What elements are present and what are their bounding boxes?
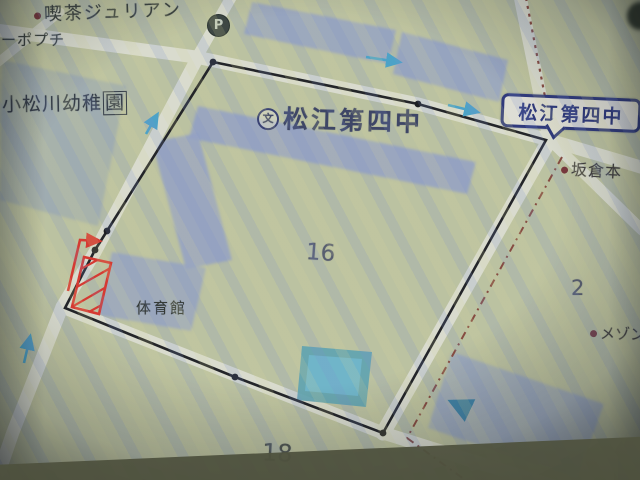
sign-matsue-dai4-chu: 松江第四中: [500, 93, 640, 133]
map-photo-stage: 喫茶ジュリアン ーポプチ 小松川幼稚園 文松江第四中 体育館 坂倉本 メゾン 1…: [0, 0, 640, 480]
label-kindergarten-text: 小松川幼稚: [2, 92, 102, 116]
poi-dot-icon: [561, 166, 568, 173]
school-map-symbol-icon: 文: [257, 108, 280, 131]
pool: [297, 346, 372, 407]
block-number-16: 16: [305, 239, 336, 267]
label-maison: メゾン: [590, 326, 640, 344]
label-popuchi: ーポプチ: [1, 33, 65, 49]
parking-icon: P: [207, 14, 230, 37]
poi-dot-icon: [590, 330, 597, 337]
label-sakakura: 坂倉本: [561, 161, 623, 181]
boundary-vertex-dot: [415, 101, 422, 108]
label-school-name: 文松江第四中: [257, 106, 424, 137]
pool-inner: [305, 355, 362, 396]
boundary-vertex-dot: [232, 374, 239, 381]
kindergarten-map-symbol: 園: [103, 91, 127, 115]
boundary-vertex-dot: [210, 59, 217, 66]
boundary-vertex-dot: [104, 228, 111, 235]
block-number-2: 2: [571, 276, 584, 300]
label-sakakura-text: 坂倉本: [571, 160, 623, 182]
label-gym: 体育館: [136, 301, 187, 317]
block-number-18: 18: [261, 438, 293, 468]
label-maison-text: メゾン: [600, 324, 640, 344]
sign-text: 松江第四中: [518, 97, 624, 129]
label-popuchi-text: ポプチ: [17, 31, 65, 49]
label-school-name-text: 松江第四中: [283, 107, 424, 137]
label-kindergarten: 小松川幼稚園: [2, 94, 127, 116]
boundary-vertex-dot: [380, 430, 387, 437]
boundary-vertex-dot: [92, 247, 99, 254]
poi-dot-icon: [34, 12, 41, 19]
label-popuchi-prefix: ー: [1, 31, 17, 49]
